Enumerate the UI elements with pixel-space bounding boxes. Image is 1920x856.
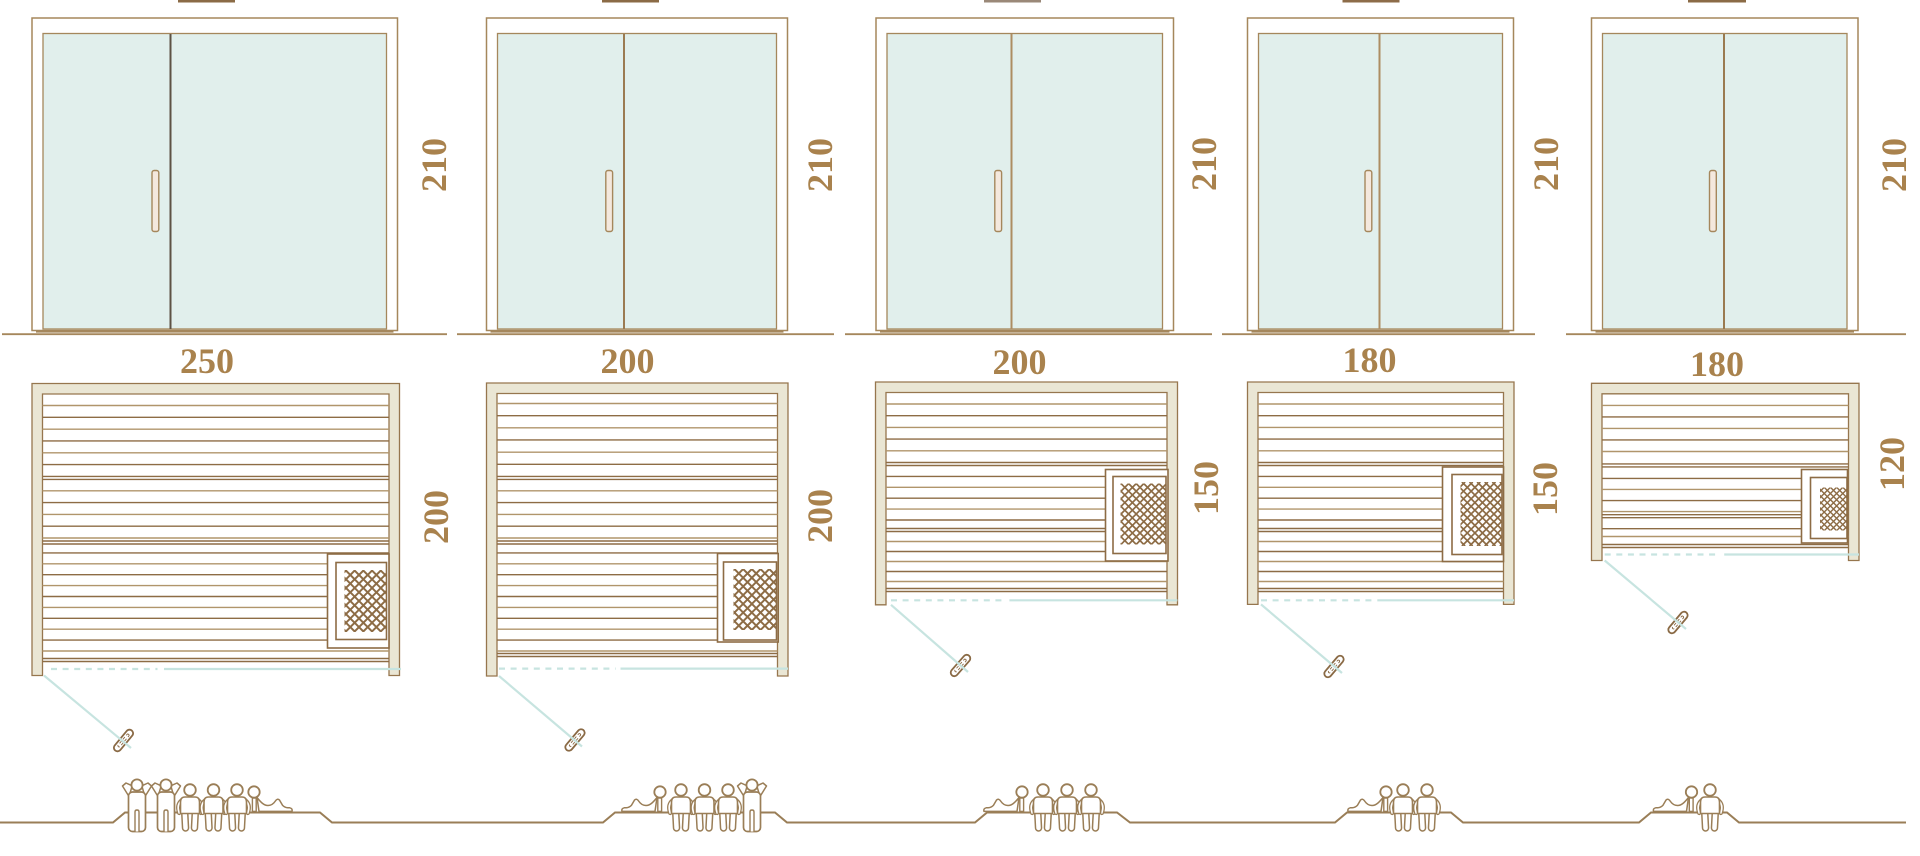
svg-text:210: 210	[1874, 138, 1914, 192]
svg-text:250: 250	[180, 341, 234, 381]
svg-text:200: 200	[800, 489, 840, 543]
svg-text:150: 150	[1186, 461, 1226, 515]
svg-text:210: 210	[800, 138, 840, 192]
svg-text:200: 200	[416, 490, 456, 544]
svg-text:210: 210	[414, 138, 454, 192]
svg-text:210: 210	[1184, 137, 1224, 191]
svg-text:150: 150	[1525, 462, 1565, 516]
svg-text:200: 200	[601, 341, 655, 381]
svg-text:210: 210	[1526, 137, 1566, 191]
svg-text:120: 120	[1872, 437, 1912, 491]
svg-text:200: 200	[993, 342, 1047, 382]
svg-text:180: 180	[1343, 340, 1397, 380]
svg-text:180: 180	[1690, 344, 1744, 384]
